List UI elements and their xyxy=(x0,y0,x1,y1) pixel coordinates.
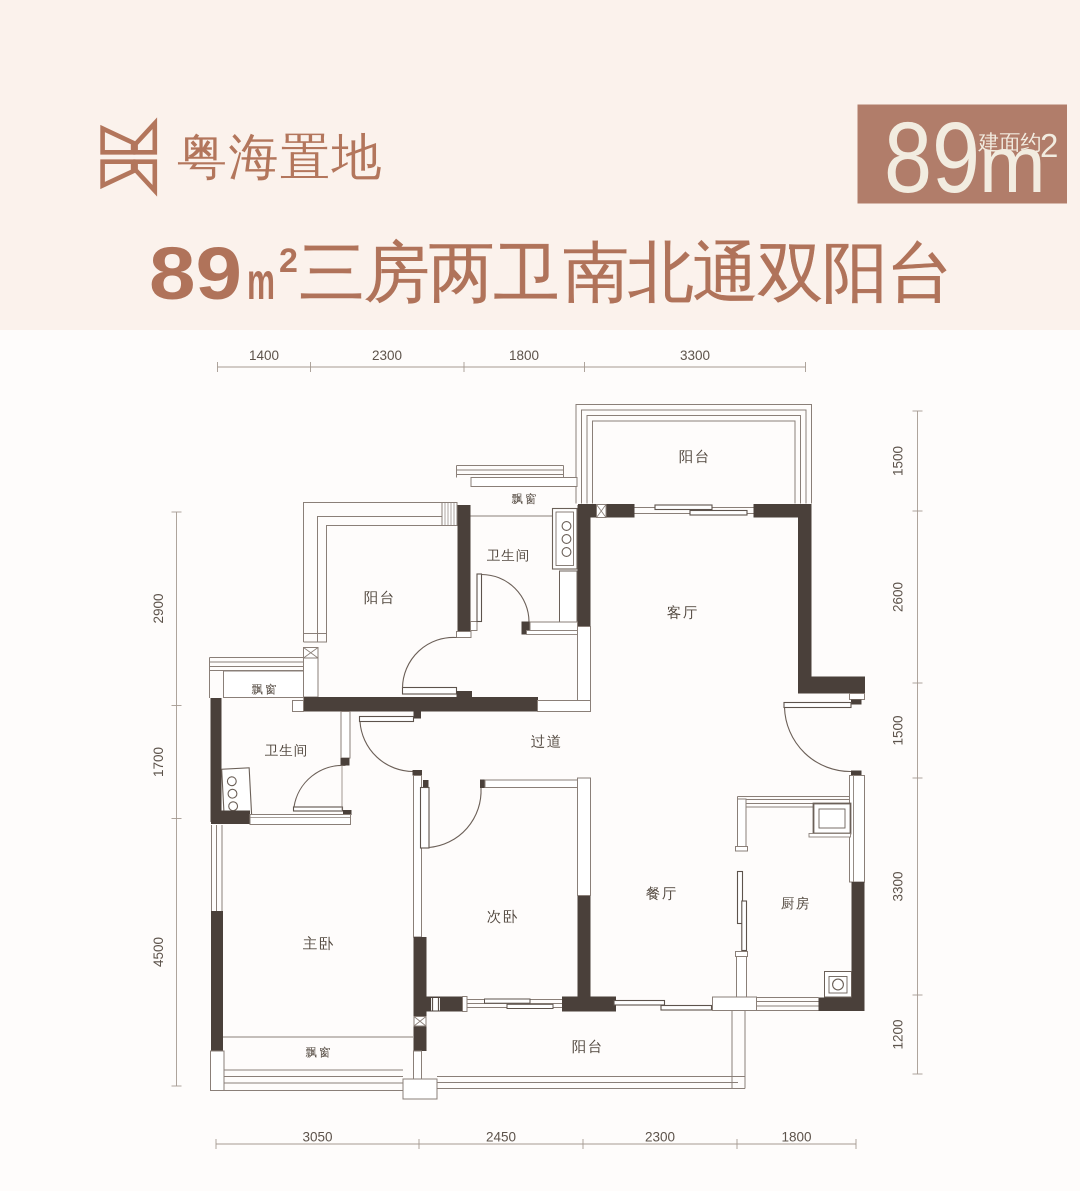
svg-text:1700: 1700 xyxy=(151,747,166,777)
svg-text:2: 2 xyxy=(279,242,298,280)
svg-text:2900: 2900 xyxy=(151,593,166,623)
svg-text:1500: 1500 xyxy=(891,446,906,476)
svg-text:2300: 2300 xyxy=(372,348,402,363)
svg-text:3050: 3050 xyxy=(302,1130,332,1145)
svg-text:89: 89 xyxy=(884,102,980,214)
svg-text:89: 89 xyxy=(149,232,242,315)
svg-text:1200: 1200 xyxy=(891,1019,906,1049)
svg-text:3300: 3300 xyxy=(680,348,710,363)
svg-text:1800: 1800 xyxy=(509,348,539,363)
svg-text:m: m xyxy=(247,253,275,311)
svg-text:2450: 2450 xyxy=(486,1130,516,1145)
svg-text:2300: 2300 xyxy=(645,1130,675,1145)
svg-text:1500: 1500 xyxy=(891,715,906,745)
svg-text:3300: 3300 xyxy=(891,871,906,901)
svg-text:1800: 1800 xyxy=(781,1130,811,1145)
svg-text:2: 2 xyxy=(1040,127,1058,164)
svg-text:1400: 1400 xyxy=(249,348,279,363)
svg-text:2600: 2600 xyxy=(891,582,906,612)
svg-text:4500: 4500 xyxy=(151,937,166,967)
